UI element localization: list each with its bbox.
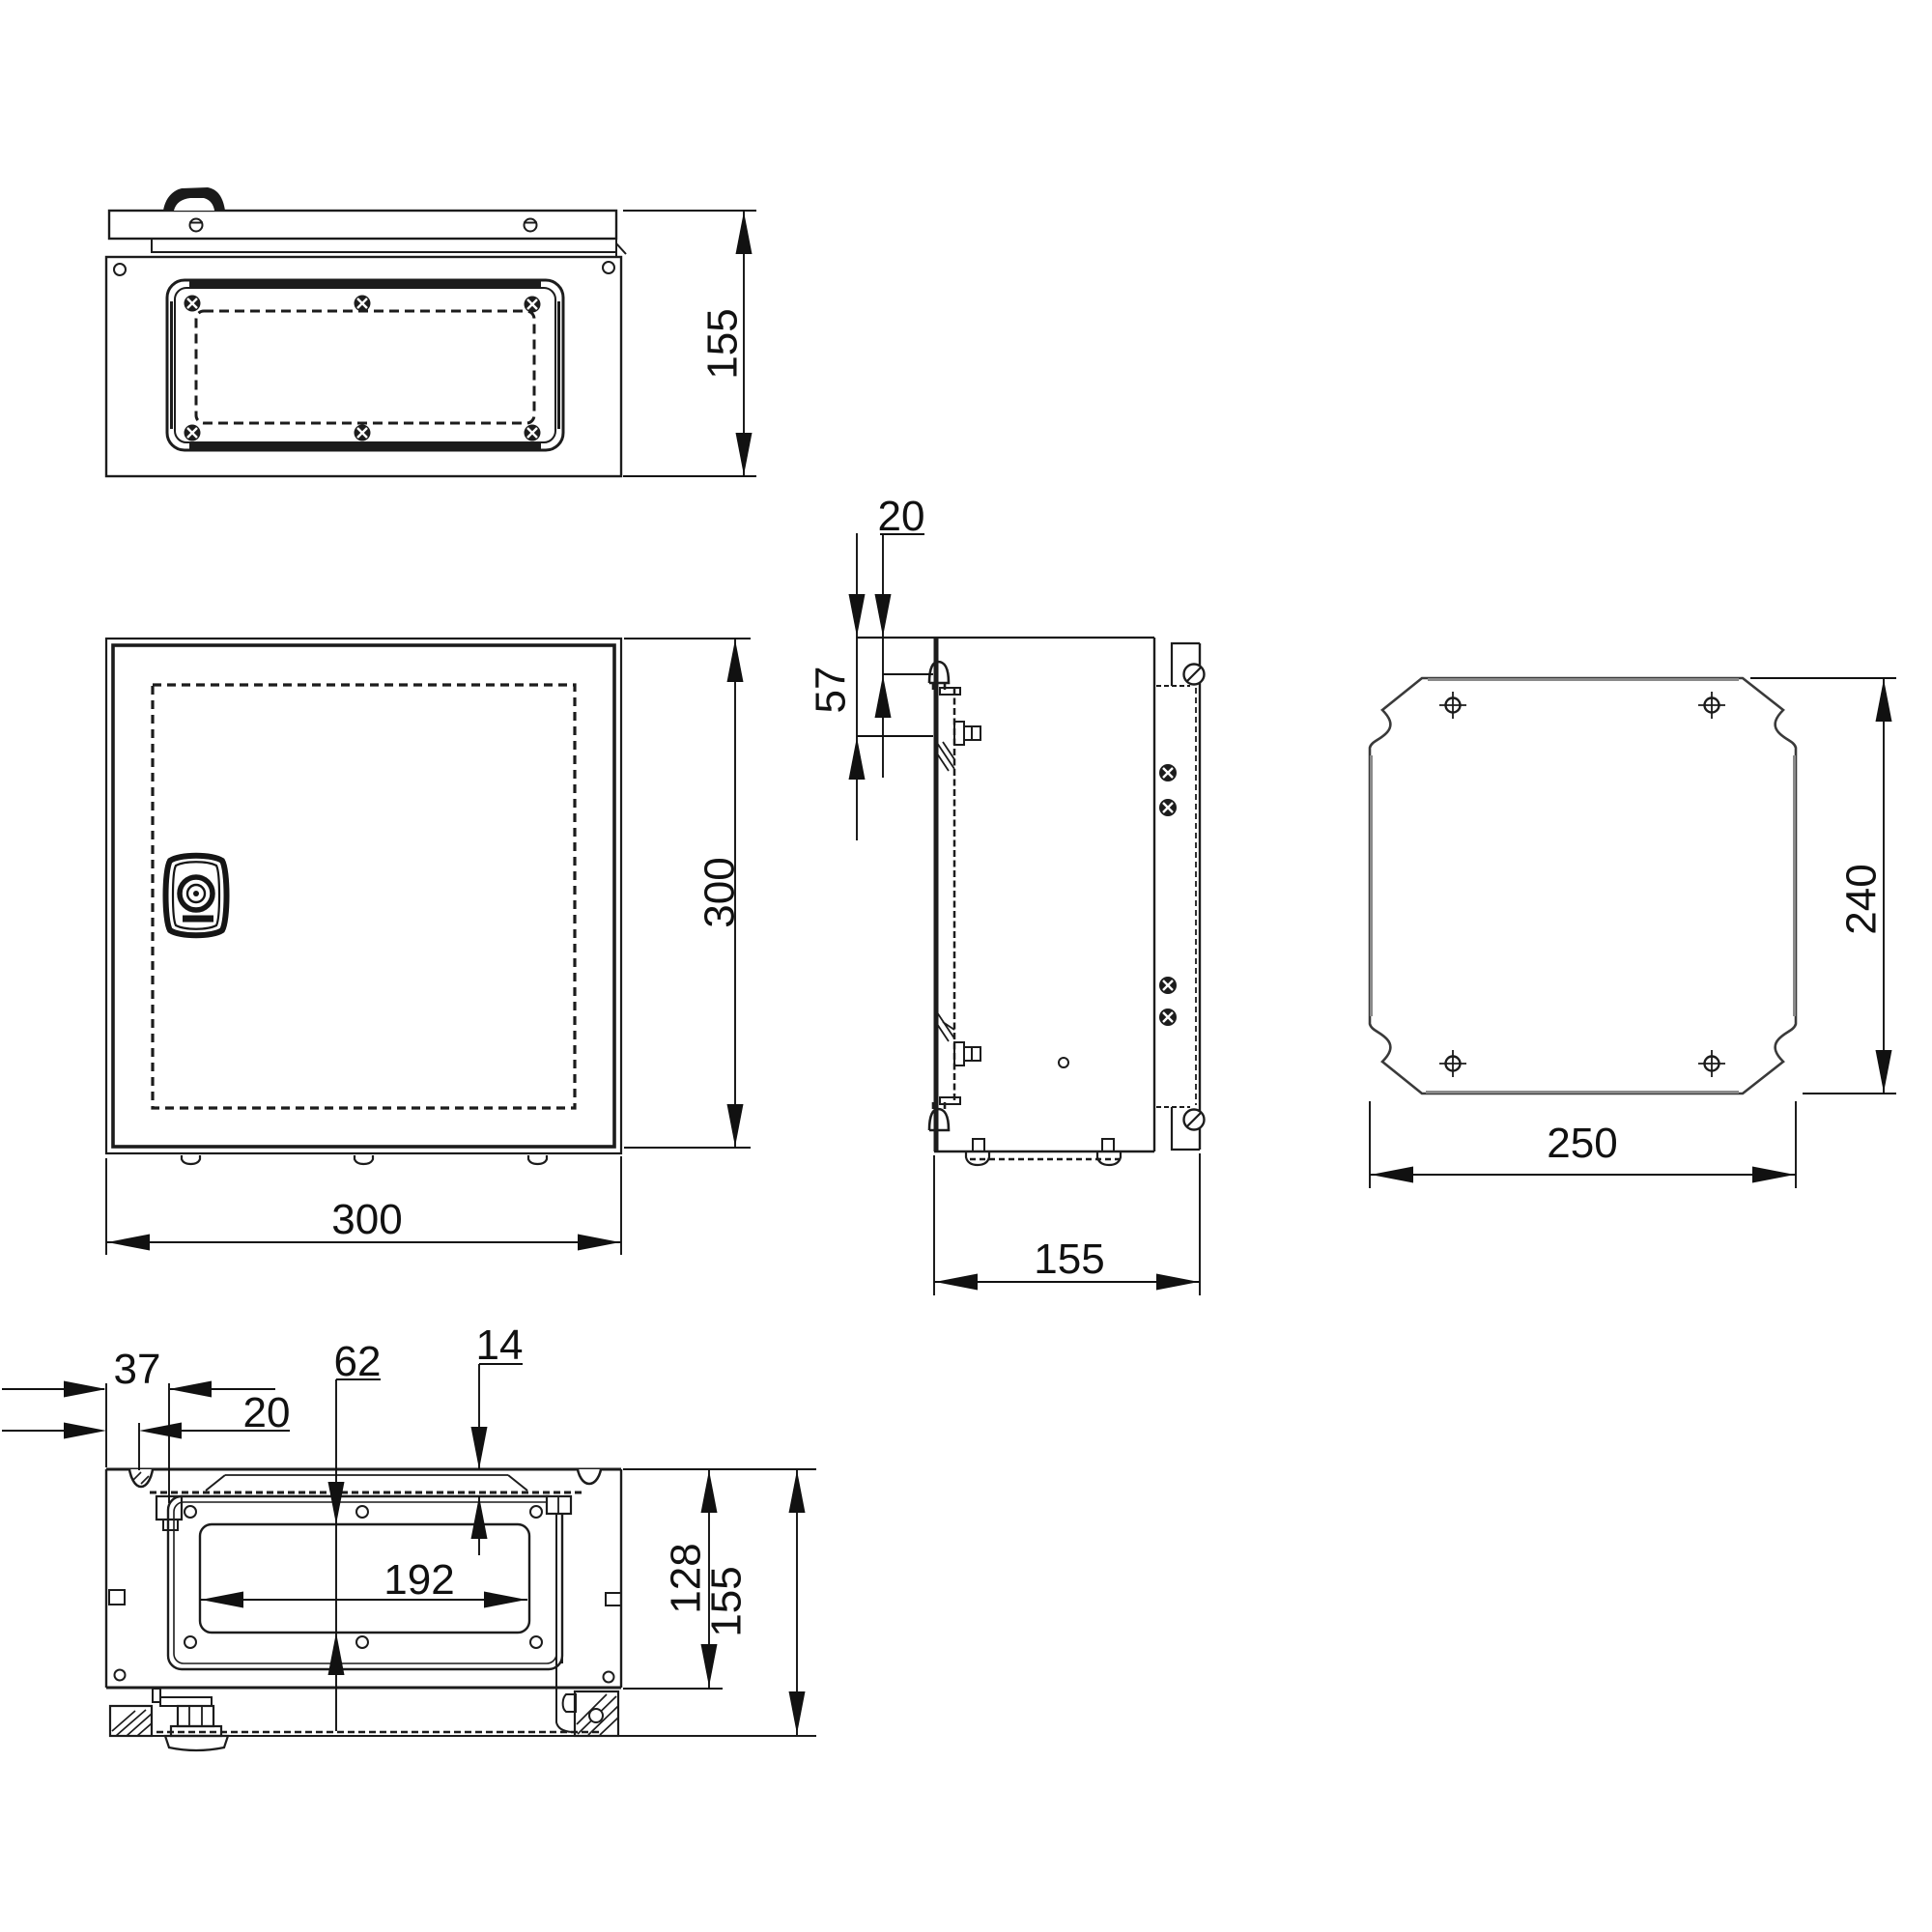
svg-text:20: 20: [878, 493, 925, 540]
svg-text:300: 300: [331, 1196, 402, 1243]
svg-text:20: 20: [243, 1389, 291, 1436]
svg-text:37: 37: [114, 1346, 161, 1393]
svg-text:250: 250: [1547, 1120, 1617, 1167]
svg-text:14: 14: [476, 1321, 524, 1369]
svg-text:155: 155: [1034, 1236, 1104, 1283]
svg-text:155: 155: [703, 1566, 751, 1636]
svg-text:240: 240: [1838, 864, 1886, 934]
svg-text:57: 57: [808, 667, 855, 714]
svg-text:192: 192: [384, 1556, 454, 1604]
svg-text:62: 62: [334, 1338, 382, 1385]
svg-text:155: 155: [699, 308, 747, 379]
svg-text:300: 300: [696, 857, 744, 927]
